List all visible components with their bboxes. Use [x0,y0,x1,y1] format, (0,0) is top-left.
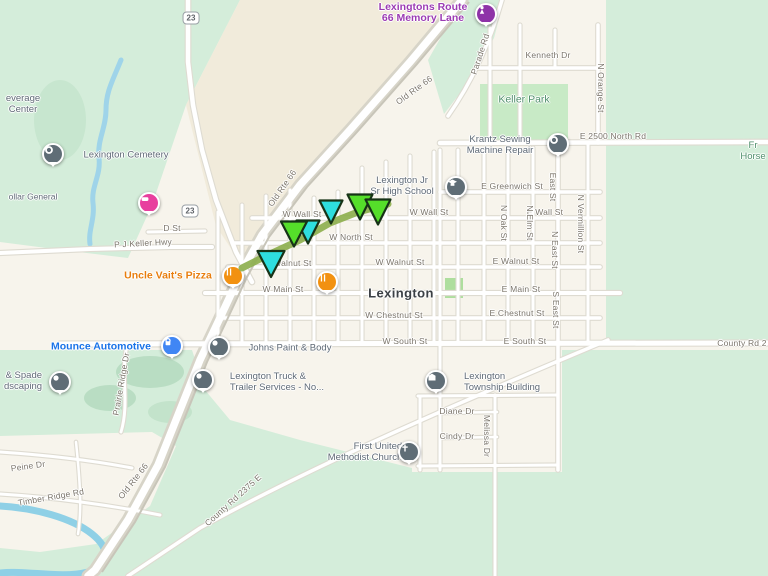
annotation-overlay [0,0,768,576]
map-canvas[interactable]: Kenneth DrN Orange StParade RdE 2500 Nor… [0,0,768,576]
annotation-arrow-6-cyan [258,251,285,277]
